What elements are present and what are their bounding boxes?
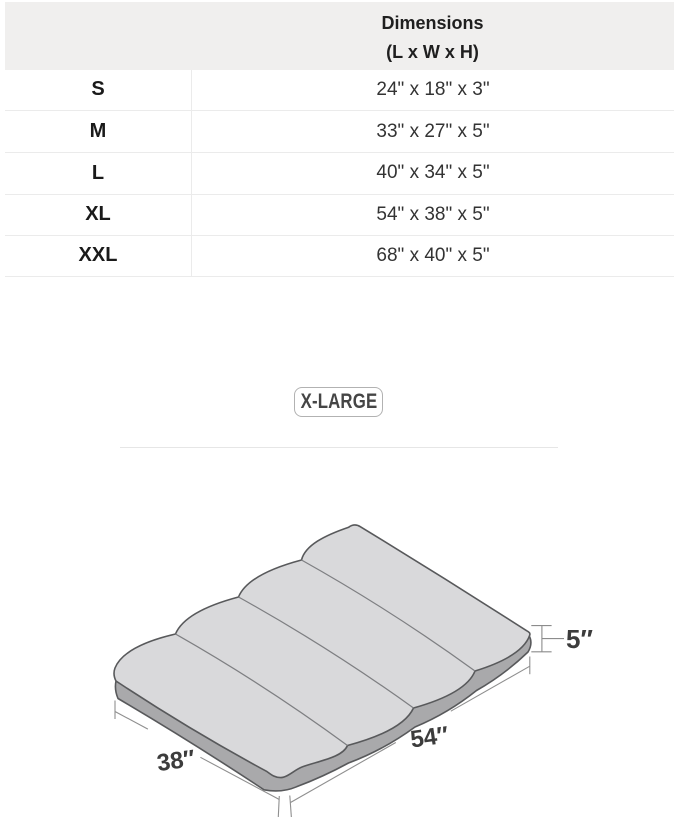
svg-text:38″: 38″ <box>155 745 197 777</box>
svg-text:5″: 5″ <box>566 624 593 654</box>
svg-text:54″: 54″ <box>409 721 451 753</box>
